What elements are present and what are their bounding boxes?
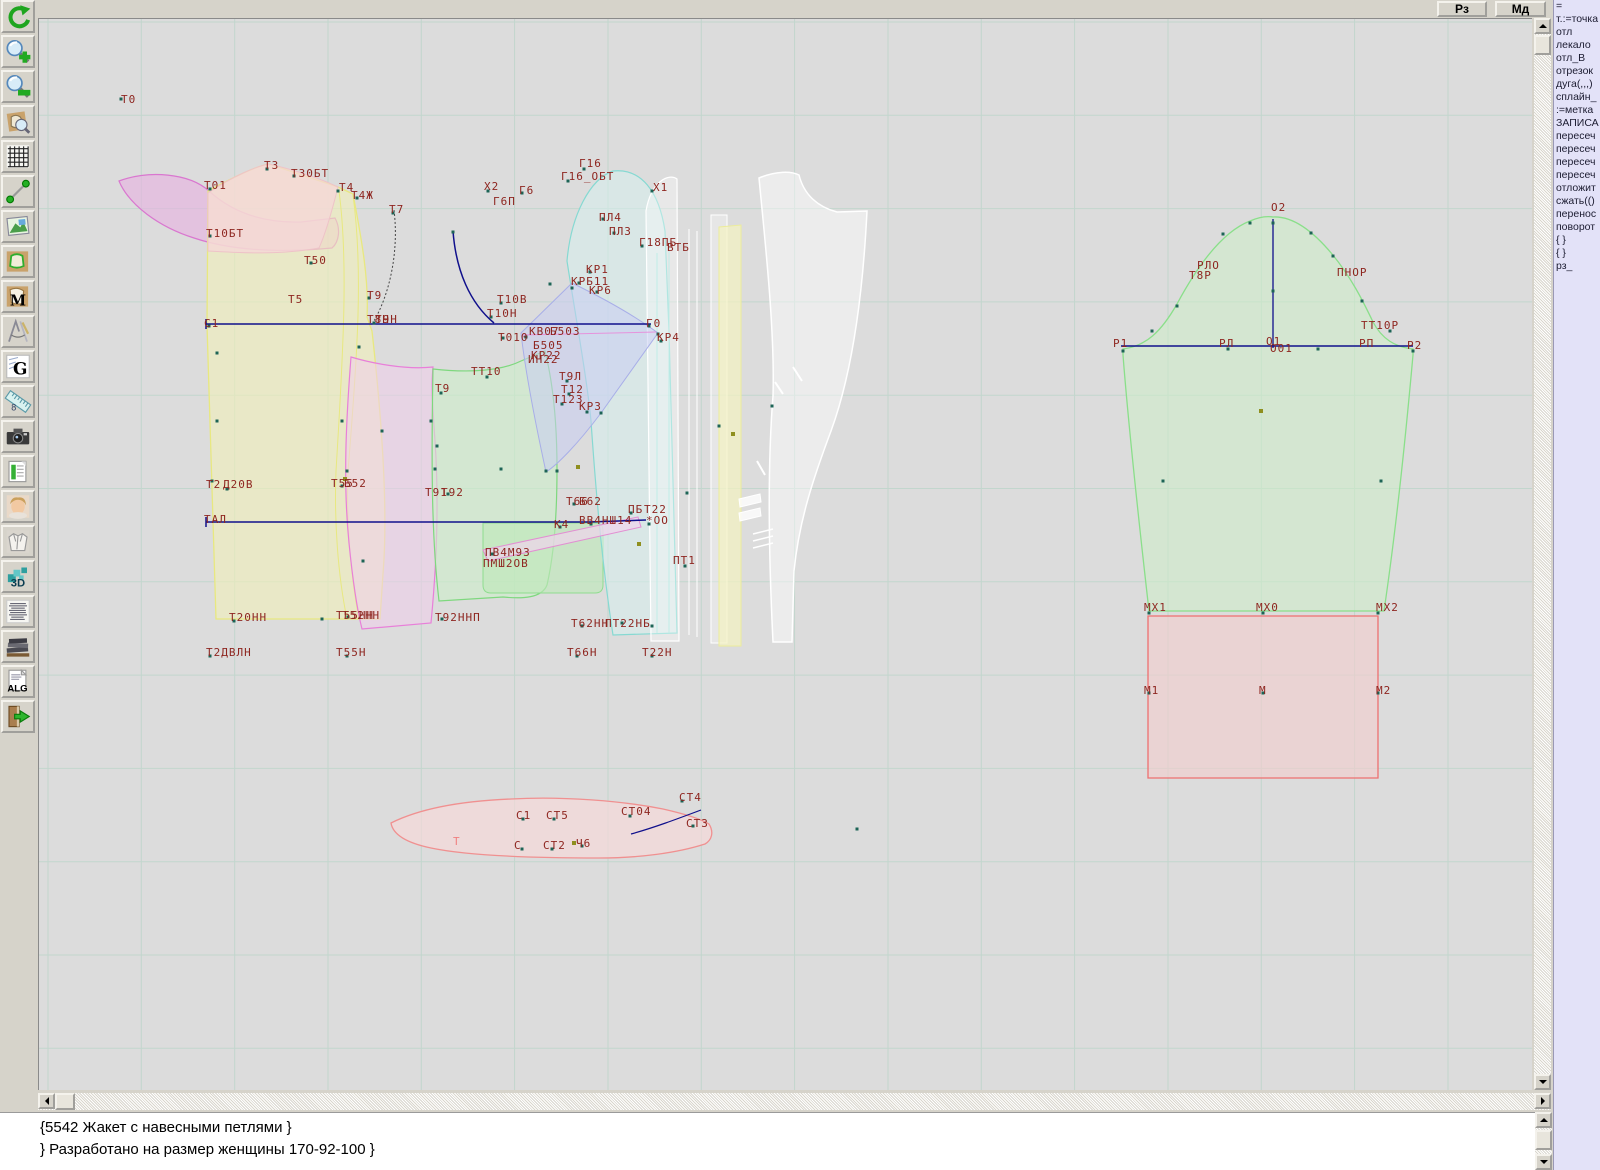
piece-preview-button[interactable] (1, 105, 35, 138)
table-button[interactable] (1, 455, 35, 488)
drafting-button[interactable] (1, 315, 35, 348)
message-area: {5542 Жакет с навесными петлями } } Разр… (0, 1112, 1536, 1170)
graphics-g-icon: G (4, 353, 32, 380)
command-item[interactable]: перенос (1554, 208, 1600, 221)
command-item[interactable]: отрезок (1554, 65, 1600, 78)
drawing-canvas[interactable]: Т0Т3Т30БТТ01Т4Т4ЖТ7Т10БТТ50Т5Т9Т8НТ9НС1Х… (38, 18, 1532, 1090)
command-item[interactable]: пересеч (1554, 130, 1600, 143)
model-photo-button[interactable] (1, 490, 35, 523)
table-icon (4, 458, 32, 485)
model-photo-icon (4, 493, 32, 520)
drafting-icon (4, 318, 32, 345)
canvas-horizontal-scrollbar[interactable] (38, 1093, 1551, 1110)
archive-books-icon (4, 633, 32, 660)
rz-mode-button[interactable]: Рз (1437, 1, 1487, 17)
svg-text:8: 8 (11, 403, 16, 413)
canvas-vertical-scrollbar[interactable] (1534, 18, 1551, 1090)
pattern-m-button[interactable]: M (1, 280, 35, 313)
grid-button[interactable] (1, 140, 35, 173)
ruler-button[interactable]: 8 (1, 385, 35, 418)
line-tool-button[interactable] (1, 175, 35, 208)
algorithm-icon: ALG (4, 668, 32, 695)
command-item[interactable]: рз_ (1554, 260, 1600, 273)
image-button[interactable] (1, 210, 35, 243)
command-item[interactable]: отл (1554, 26, 1600, 39)
command-item[interactable]: пересеч (1554, 169, 1600, 182)
command-item[interactable]: дуга(,,,) (1554, 78, 1600, 91)
svg-text:3D: 3D (11, 578, 25, 590)
command-item[interactable]: поворот (1554, 221, 1600, 234)
image-icon (4, 213, 32, 240)
zoom-out-icon (4, 73, 32, 100)
command-item[interactable]: сжать(() (1554, 195, 1600, 208)
message-scrollbar[interactable] (1535, 1112, 1552, 1170)
command-item[interactable]: { } (1554, 247, 1600, 260)
command-item[interactable]: отл_В (1554, 52, 1600, 65)
message-scroll-down-button[interactable] (1535, 1154, 1552, 1170)
piece-preview-icon (4, 108, 32, 135)
scroll-left-button[interactable] (38, 1093, 55, 1109)
exit-icon (4, 703, 32, 730)
pattern-piece-icon (4, 248, 32, 275)
camera-button[interactable] (1, 420, 35, 453)
vertical-scroll-thumb[interactable] (1534, 35, 1551, 55)
algorithm-button[interactable]: ALG (1, 665, 35, 698)
undo-icon (4, 3, 32, 30)
pattern-drawing (39, 19, 1532, 1090)
command-item[interactable]: { } (1554, 234, 1600, 247)
svg-text:ALG: ALG (7, 684, 27, 695)
message-scroll-up-button[interactable] (1535, 1112, 1552, 1128)
zoom-in-button[interactable] (1, 35, 35, 68)
line-tool-icon (4, 178, 32, 205)
garment-button[interactable] (1, 525, 35, 558)
zoom-in-icon (4, 38, 32, 65)
command-item[interactable]: т.:=точка (1554, 13, 1600, 26)
message-scroll-thumb[interactable] (1535, 1130, 1552, 1150)
command-item[interactable]: лекало (1554, 39, 1600, 52)
view-3d-icon: 3D (4, 563, 32, 590)
scroll-down-button[interactable] (1534, 1074, 1551, 1090)
scroll-up-button[interactable] (1534, 18, 1551, 34)
grazia-cad-window: { "topbar": { "buttons": [ {"label": "Рз… (0, 0, 1600, 1170)
ruler-icon: 8 (4, 388, 32, 415)
md-mode-button[interactable]: Мд (1495, 1, 1546, 17)
command-item[interactable]: :=метка (1554, 104, 1600, 117)
pattern-m-icon: M (4, 283, 32, 310)
command-item[interactable]: пересеч (1554, 143, 1600, 156)
command-item[interactable]: сплайн_ (1554, 91, 1600, 104)
garment-icon (4, 528, 32, 555)
status-line-1: {5542 Жакет с навесными петлями } (40, 1119, 292, 1136)
svg-text:G: G (13, 358, 27, 378)
undo-button[interactable] (1, 0, 35, 33)
text-list-button[interactable] (1, 595, 35, 628)
zoom-out-button[interactable] (1, 70, 35, 103)
status-line-2: } Разработано на размер женщины 170-92-1… (40, 1141, 375, 1158)
left-toolbar: MG83DALG (0, 0, 37, 1170)
archive-books-button[interactable] (1, 630, 35, 663)
horizontal-scroll-thumb[interactable] (55, 1093, 75, 1110)
view-3d-button[interactable]: 3D (1, 560, 35, 593)
grid-icon (4, 143, 32, 170)
scroll-right-button[interactable] (1534, 1093, 1551, 1109)
command-item[interactable]: ЗАПИСА (1554, 117, 1600, 130)
command-item[interactable]: отложит (1554, 182, 1600, 195)
svg-text:M: M (10, 293, 26, 310)
graphics-g-button[interactable]: G (1, 350, 35, 383)
command-panel: =т.:=точкаотллекалоотл_Вотрезокдуга(,,,)… (1553, 0, 1600, 1170)
top-bar (37, 0, 1551, 18)
exit-button[interactable] (1, 700, 35, 733)
command-item[interactable]: пересеч (1554, 156, 1600, 169)
pattern-piece-button[interactable] (1, 245, 35, 278)
text-list-icon (4, 598, 32, 625)
camera-icon (4, 423, 32, 450)
command-item[interactable]: = (1554, 0, 1600, 13)
